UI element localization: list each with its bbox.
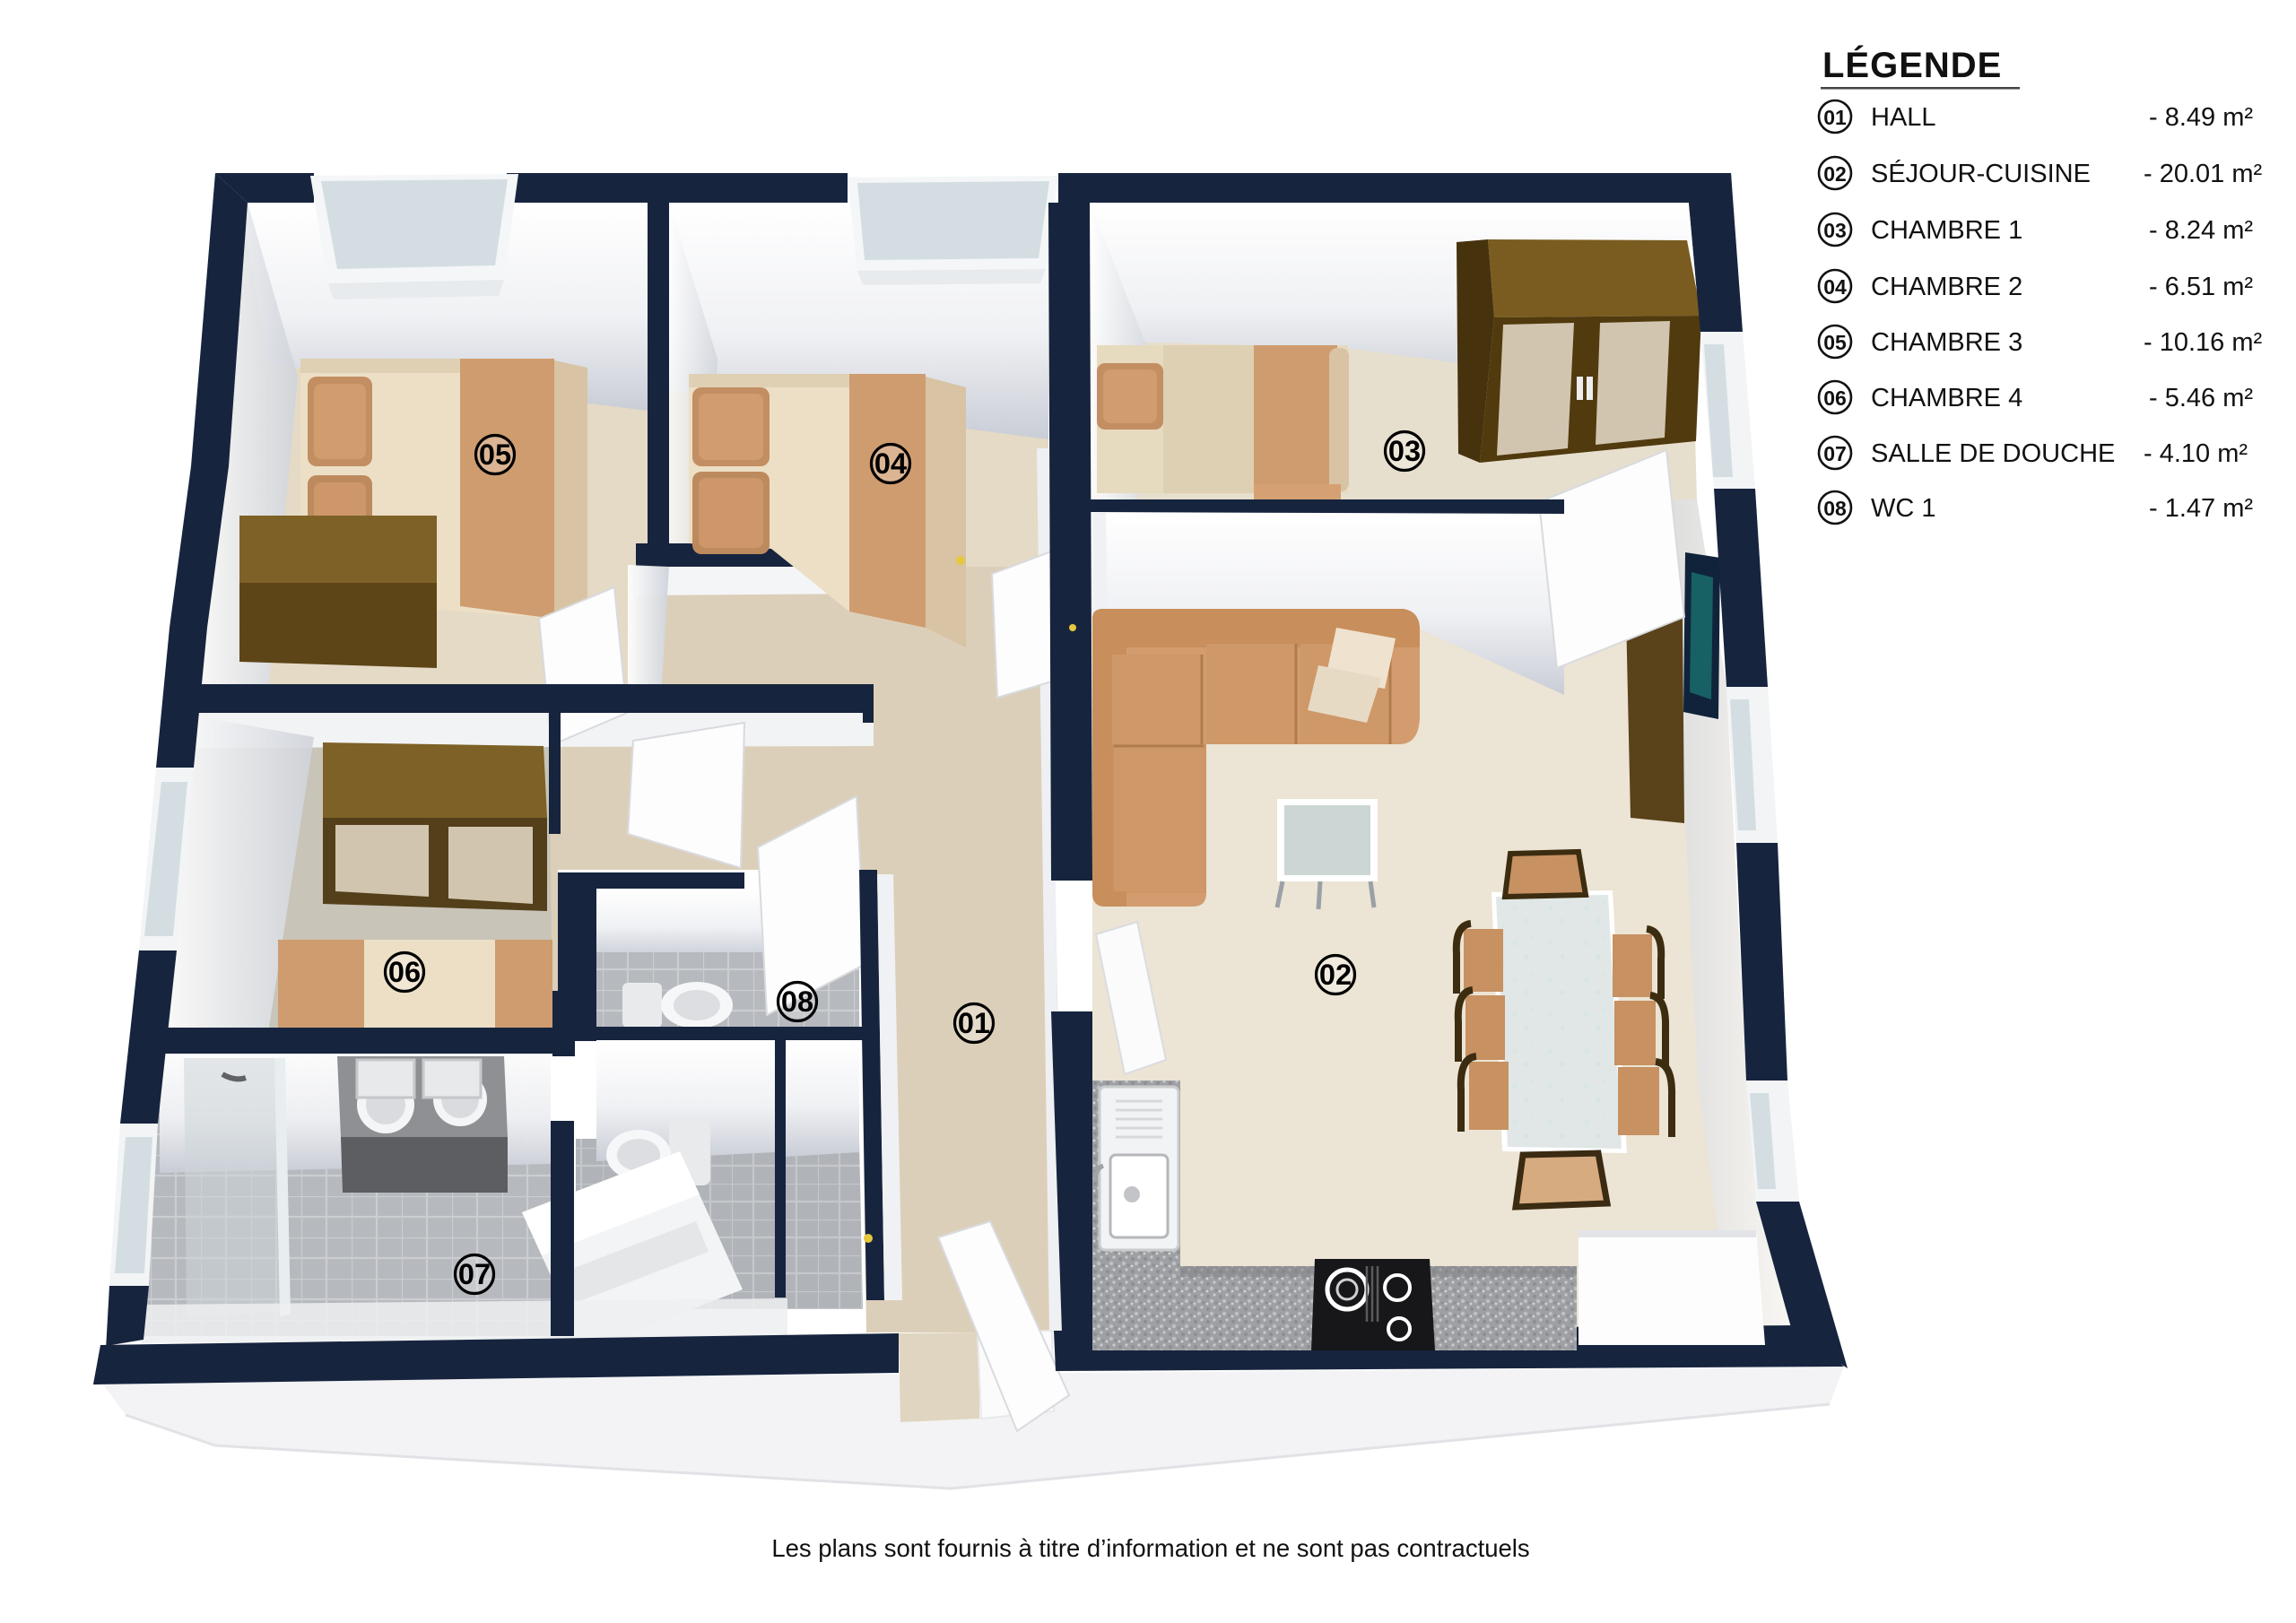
svg-text:Les plans sont fournis à titre: Les plans sont fournis à titre d’informa…	[771, 1534, 1529, 1562]
svg-text:01: 01	[958, 1007, 990, 1039]
svg-text:04: 04	[874, 447, 907, 480]
svg-text:04: 04	[1823, 275, 1847, 299]
svg-text:- 10.16 m²: - 10.16 m²	[2144, 328, 2262, 357]
svg-text:08: 08	[781, 985, 813, 1018]
svg-text:CHAMBRE 1: CHAMBRE 1	[1871, 216, 2022, 245]
svg-text:WC 1: WC 1	[1871, 494, 1936, 523]
svg-text:- 8.49 m²: - 8.49 m²	[2149, 103, 2253, 132]
svg-text:- 8.24 m²: - 8.24 m²	[2149, 216, 2253, 245]
svg-text:CHAMBRE 4: CHAMBRE 4	[1871, 384, 2022, 412]
svg-text:01: 01	[1823, 106, 1847, 129]
svg-text:08: 08	[1823, 497, 1847, 520]
svg-text:HALL: HALL	[1871, 103, 1936, 132]
svg-text:- 20.01 m²: - 20.01 m²	[2144, 160, 2262, 188]
svg-text:03: 03	[1823, 219, 1847, 242]
svg-text:- 1.47 m²: - 1.47 m²	[2149, 494, 2253, 523]
svg-text:07: 07	[1823, 442, 1847, 465]
svg-text:02: 02	[1319, 959, 1352, 991]
svg-text:CHAMBRE 2: CHAMBRE 2	[1871, 273, 2022, 301]
svg-text:- 6.51 m²: - 6.51 m²	[2149, 273, 2253, 301]
svg-text:- 5.46 m²: - 5.46 m²	[2149, 384, 2253, 412]
svg-text:CHAMBRE 3: CHAMBRE 3	[1871, 328, 2022, 357]
svg-text:02: 02	[1823, 162, 1847, 186]
svg-text:05: 05	[1823, 331, 1847, 354]
svg-text:LÉGENDE: LÉGENDE	[1822, 45, 2002, 85]
svg-text:SÉJOUR-CUISINE: SÉJOUR-CUISINE	[1871, 159, 2091, 188]
svg-text:06: 06	[1823, 386, 1847, 410]
svg-text:- 4.10 m²: - 4.10 m²	[2144, 439, 2248, 468]
svg-text:SALLE DE DOUCHE: SALLE DE DOUCHE	[1871, 439, 2115, 468]
svg-text:07: 07	[458, 1258, 491, 1290]
svg-text:06: 06	[388, 956, 421, 988]
svg-text:03: 03	[1388, 435, 1421, 467]
svg-text:05: 05	[479, 438, 511, 471]
